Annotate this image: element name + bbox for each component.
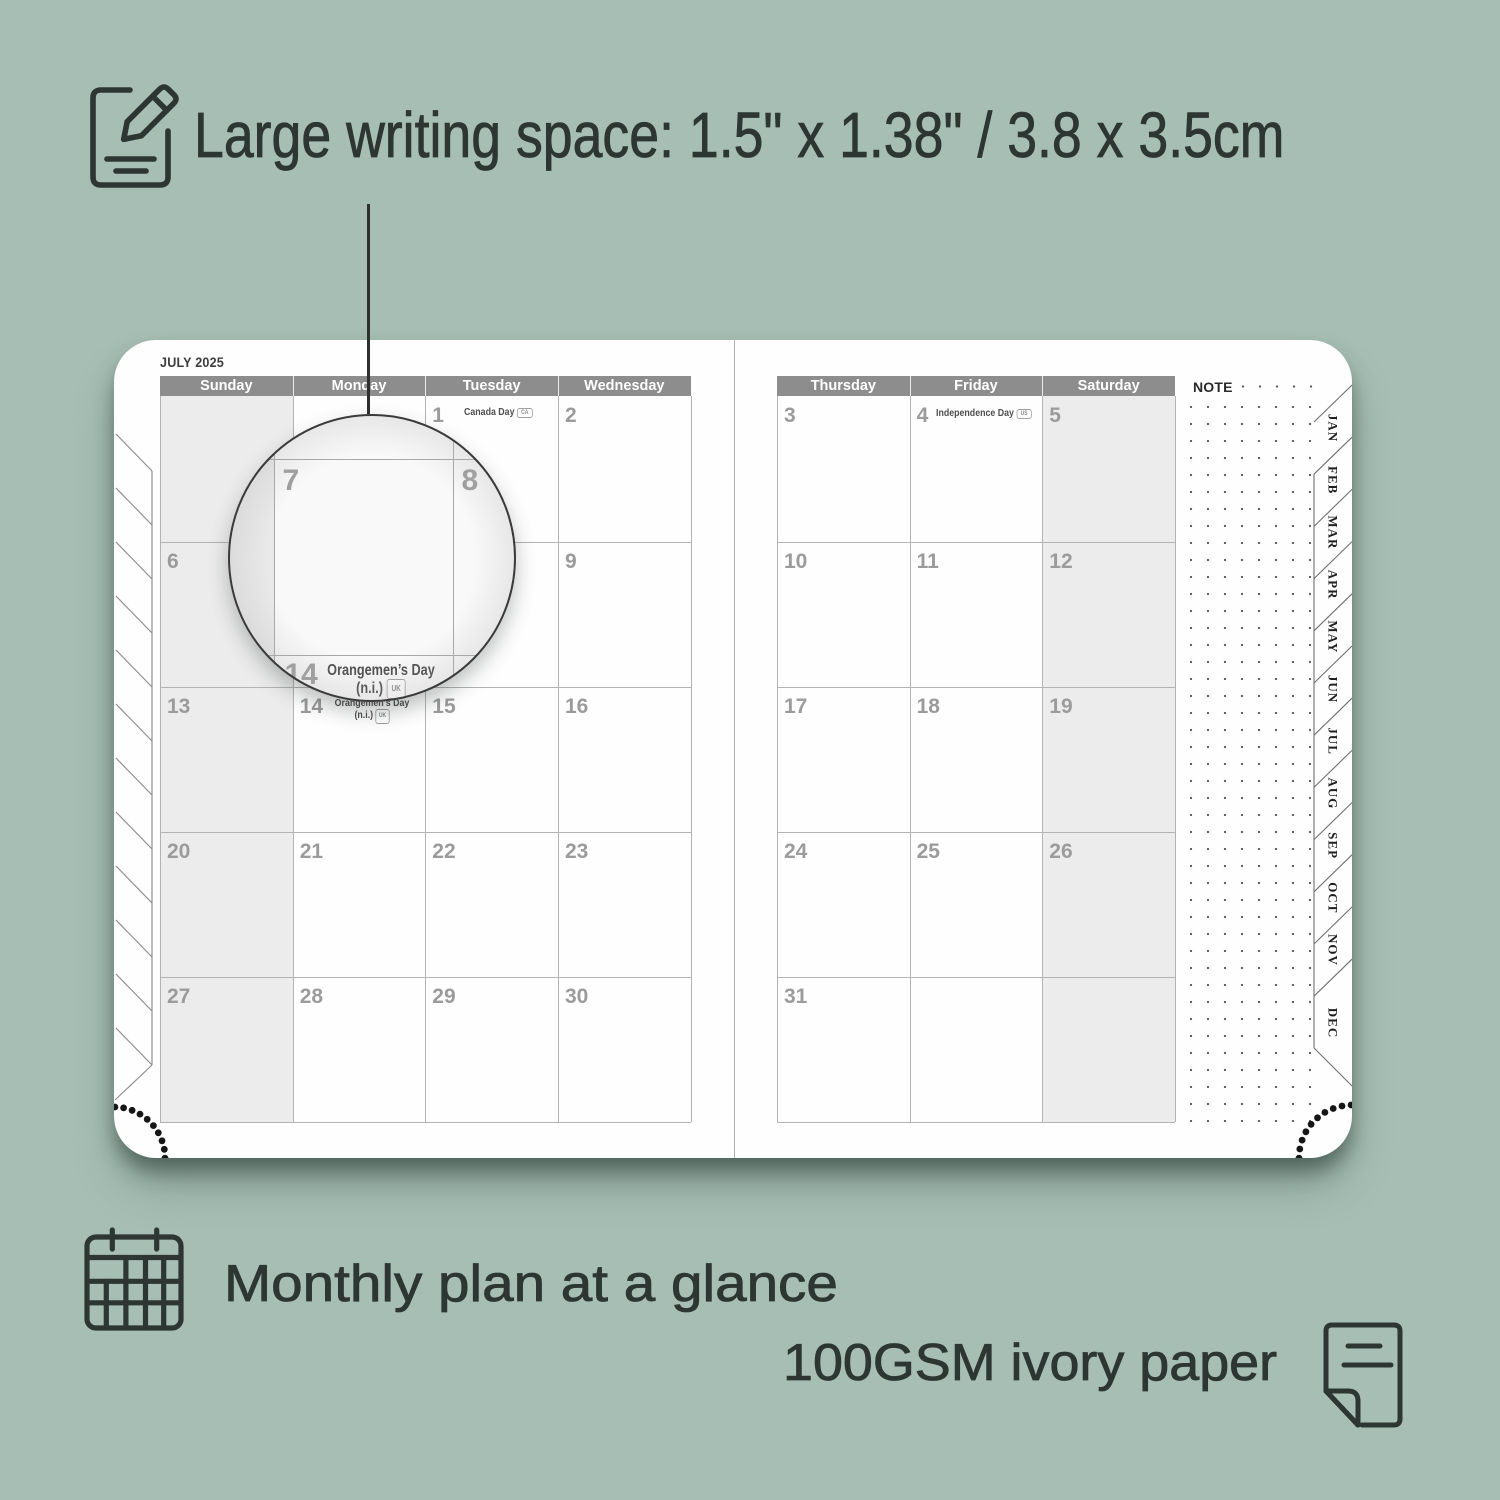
svg-text:AUG: AUG bbox=[1326, 777, 1341, 809]
svg-text:SEP: SEP bbox=[1326, 832, 1341, 859]
svg-text:JAN: JAN bbox=[1326, 414, 1341, 442]
svg-text:APR: APR bbox=[1326, 570, 1341, 600]
svg-text:NOV: NOV bbox=[1326, 934, 1341, 966]
svg-text:JUL: JUL bbox=[1326, 727, 1341, 755]
svg-text:MAR: MAR bbox=[1326, 515, 1341, 549]
svg-text:JUN: JUN bbox=[1326, 675, 1341, 703]
svg-text:FEB: FEB bbox=[1326, 466, 1341, 494]
svg-text:OCT: OCT bbox=[1326, 882, 1341, 913]
svg-text:DEC: DEC bbox=[1326, 1008, 1341, 1038]
svg-text:MAY: MAY bbox=[1326, 620, 1341, 653]
